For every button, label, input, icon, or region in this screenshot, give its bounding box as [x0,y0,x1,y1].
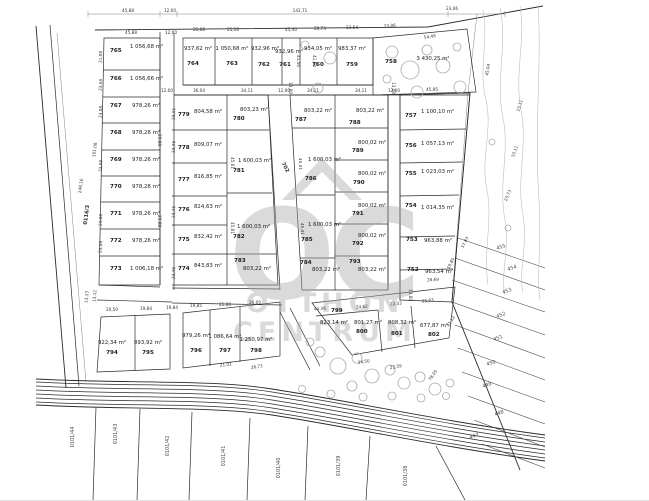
dimension-label: 12,00 [161,88,173,93]
parcel-area: 1 057,13 m² [421,140,454,147]
dimension-label: 45,01 [230,222,235,234]
parcel-area: 937,62 m² [184,45,212,52]
parcel-area: 816,85 m² [194,173,222,180]
dimension-label: 23,11 [171,108,176,120]
parcel-area: 677,87 m² [420,322,448,329]
parcel-number: 755 [405,171,417,177]
neighbor-parcel-label: 450 [486,359,497,368]
parcel-number: 787 [295,117,307,123]
dimension-label: 25,03 [422,297,435,303]
dimension-label: 24,62 [356,303,369,309]
dimension-label: 25,08 [193,27,205,32]
dimension-label: 26,00 [249,300,261,305]
parcel-area: 801,27 m² [354,319,382,326]
parcel-area: 800,02 m² [358,139,386,146]
parcel-number: 795 [142,350,154,356]
parcel-area: 1 056,68 m² [130,43,163,50]
parcel-number: 769 [110,157,122,163]
dimension-label: 20,50 [106,307,118,312]
parcel-area: 824,63 m² [194,203,222,210]
dimension-label: 45,01 [230,157,235,169]
parcel-area: 800,02 m² [358,202,386,209]
parcel-number: 797 [219,348,231,354]
dimension-label: 26,73 [250,363,263,370]
dimension-label: 23,08 [157,215,162,227]
parcel-area: 978,26 m² [132,156,160,163]
dimension-label: 45,04 [484,63,491,76]
dimension-label: 13,12 [91,289,97,302]
parcel-area: 893,92 m² [134,339,162,346]
dimension-label: 45,01 [300,223,305,235]
parcel-number: 783 [234,258,246,264]
dimension-label: 19,85 [446,257,456,270]
parcel-area: 1 006,18 m² [130,265,163,272]
parcel-number: 785 [301,237,313,243]
dimension-label: 24,50 [358,358,371,365]
parcel-number: 771 [110,211,122,217]
dimension-label: 22,59 [390,363,403,370]
dimension-label: 34,11 [355,88,367,93]
parcel-area: 963,88 m² [424,237,452,244]
parcel-area: 1 050,68 m² [215,45,248,52]
parcel-area: 803,22 m² [312,266,340,273]
south-parcel-label: 0101/38 [403,466,409,487]
parcel-area: 804,58 m² [194,108,222,115]
parcel-area: 922,34 m² [98,339,126,346]
parcel-number: 780 [233,116,245,122]
dimension-label: 23,08 [157,134,162,146]
dimension-label: 23,73 [503,189,512,202]
parcel-number: 798 [250,348,262,354]
parcel-number: 790 [353,180,365,186]
dimension-label: 33,11 [510,145,519,158]
neighbor-parcel-label: 451 [493,334,504,343]
watermark-line1: OTTHON [246,288,405,319]
dimension-label: 13,00 [391,82,396,94]
parcel-area: 1 100,10 m² [421,108,454,115]
parcel-number: 786 [305,176,317,182]
dimension-label: 23,11 [515,99,523,112]
parcel-number: 792 [352,241,364,247]
parcel-area: 978,28 m² [132,183,160,190]
parcel-area: 3 430,25 m² [416,55,449,62]
parcel-number: 775 [178,237,190,243]
parcel-area: 978,28 m² [132,129,160,136]
dimension-label: 23,46 [171,206,176,218]
dimension-label: 17,83 [460,236,470,249]
dimension-label: 25,56 [227,27,239,32]
neighbor-parcel-label: 454 [507,264,518,273]
dimension-label: 78,05 [427,369,438,382]
parcel-number: 758 [385,59,397,65]
parcel-area: 978,26 m² [132,210,160,217]
dimension-label: 34,11 [241,88,253,93]
parcel-area: 800,02 m² [358,170,386,177]
parcel-area: 823,14 m² [320,319,348,326]
parcel-area: 1 600,03 m² [237,223,270,230]
parcel-number: 762 [258,62,270,68]
dimension-label: 23,06 [446,6,458,11]
parcel-number: 770 [110,184,122,190]
dimension-label: 13,00 [408,289,413,301]
dimension-label: 45,40 [285,27,297,32]
left-road-label: 0116/3 [83,204,91,225]
parcel-number: 774 [178,266,190,272]
parcel-number: 782 [233,234,245,240]
parcel-number: 784 [300,260,312,266]
parcel-area: 1 600,03 m² [238,157,271,164]
road-bundle [36,379,545,461]
parcel-area: 803,22 m² [243,265,271,272]
parcel-number: 756 [405,143,417,149]
dimension-label: 21,02 [220,361,233,367]
parcel-area: 1 056,66 m² [130,75,163,82]
south-parcel-label: 0101/44 [70,427,76,448]
dimension-label: 20,73 [314,26,326,31]
parcel-number: 800 [356,329,368,335]
neighbor-parcel-label: 448 [494,409,505,418]
dimension-label: 45,01 [298,158,303,170]
dimension-label: 19,85 [190,303,202,308]
dimension-label: 45,95 [426,87,438,92]
parcel-number: 766 [110,76,122,82]
middle-road-label: 702 [280,161,291,174]
parcel-number: 757 [405,113,417,119]
dimension-label: 21,08 [98,50,104,63]
dimension-label: 34,11 [307,88,319,93]
parcel-number: 759 [346,62,358,68]
parcel-number: 796 [190,348,202,354]
dimension-label: 36,04 [193,88,205,93]
south-parcel-label: 0101/40 [276,458,282,479]
parcel-number: 788 [349,120,361,126]
dimension-label: 41,50 [312,55,317,67]
dimension-label: 12,00 [164,8,176,13]
south-parcel-label: 0101/39 [336,456,342,477]
parcel-area: 843,83 m² [194,262,222,269]
parcel-number: 776 [178,207,190,213]
parcel-number: 799 [331,308,343,314]
parcel-area: 808,32 m² [388,319,416,326]
neighbor-parcel-label: 455 [496,243,507,252]
parcel-area: 800,02 m² [358,232,386,239]
parcel-area: 983,37 m² [338,45,366,52]
dimension-label: 13,00 [288,82,293,94]
parcel-number: 761 [279,62,291,68]
parcel-number: 767 [110,103,122,109]
dimension-label: 41,50 [296,55,301,67]
dimension-label: 23,08 [98,240,104,253]
dimension-label: 23,08 [98,105,104,118]
parcel-number: 791 [352,211,364,217]
parcel-area: 803,23 m² [240,106,268,113]
parcel-area: 1 600,03 m² [308,221,341,228]
dimension-label: 23,46 [171,141,176,153]
dimension-label: 21,00 [219,302,231,307]
dimension-label: 22,33 [390,300,403,306]
parcel-area: 1 086,64 m² [208,333,241,340]
parcel-number: 764 [187,61,199,67]
dimension-label: 44,36 [314,306,327,312]
parcel-area: 832,42 m² [194,233,222,240]
parcel-number: 768 [110,130,122,136]
parcel-number: 752 [407,267,419,273]
south-parcel-lines [93,407,465,500]
parcel-area: 803,22 m² [356,107,384,114]
parcel-number: 772 [110,238,122,244]
dimension-label: 23,08 [98,159,104,172]
parcel-area: 979,26 m² [182,332,210,339]
parcel-number: 765 [110,48,122,54]
parcel-number: 793 [349,259,361,265]
parcel-number: 801 [391,331,403,337]
parcel-number: 753 [406,237,418,243]
parcel-area: 1 014,35 m² [421,204,454,211]
dimension-label: 23,58 [98,78,104,91]
parcel-number: 763 [226,61,238,67]
dimension-label: 161,08 [91,142,98,157]
dimension-label: 248,16 [77,178,84,193]
dimension-label: 45,88 [122,8,134,13]
parcel-area: 932,96 m² [275,48,303,55]
parcel-number: 789 [352,148,364,154]
parcel-area: 978,26 m² [132,237,160,244]
neighbor-parcel-label: 453 [502,287,513,296]
south-parcel-label: 0101/41 [221,446,227,467]
cadastral-map: OC OTTHON CENTRUM 765 1 056,68 m² 766 1 … [0,0,649,501]
parcel-area: 934,05 m² [304,45,332,52]
dimension-label: 23,06 [384,22,397,28]
south-parcel-label: 0101/43 [113,424,119,445]
dimension-label: 23,08 [98,213,104,226]
dimension-label: 19,84 [166,305,178,310]
parcel-number: 777 [178,177,190,183]
parcel-number: 773 [110,266,122,272]
parcel-area: 803,22 m² [304,107,332,114]
dimension-label: 19,84 [140,306,152,311]
parcel-area: 809,07 m² [194,141,222,148]
dimension-label: 142,71 [293,8,308,13]
dimension-label: 23,46 [171,267,176,279]
neighbor-parcel-label: 452 [496,311,507,320]
dimension-label: 23,54 [346,25,358,30]
dimension-label: 45,88 [125,30,137,35]
dimension-label: 12,00 [165,30,177,35]
dimension-label: 54,49 [424,33,437,40]
dimension-label: 41,12 [445,315,456,328]
parcel-number: 754 [405,203,417,209]
parcel-area: 1 600,03 m² [308,156,341,163]
parcel-number: 779 [178,112,190,118]
parcel-area: 803,22 m² [358,266,386,273]
parcel-number: 802 [428,332,440,338]
parcel-number: 778 [178,145,190,151]
dimension-label: 13,13 [83,290,89,303]
parcel-area: 1 023,03 m² [421,168,454,175]
parcel-area: 1 250,97 m² [239,336,272,343]
dimension-label: 28,69 [427,277,440,283]
neighbor-parcel-label: 449 [482,381,493,390]
south-parcel-label: 0101/42 [165,436,171,457]
parcel-number: 794 [106,350,118,356]
parcel-area: 978,26 m² [132,102,160,109]
